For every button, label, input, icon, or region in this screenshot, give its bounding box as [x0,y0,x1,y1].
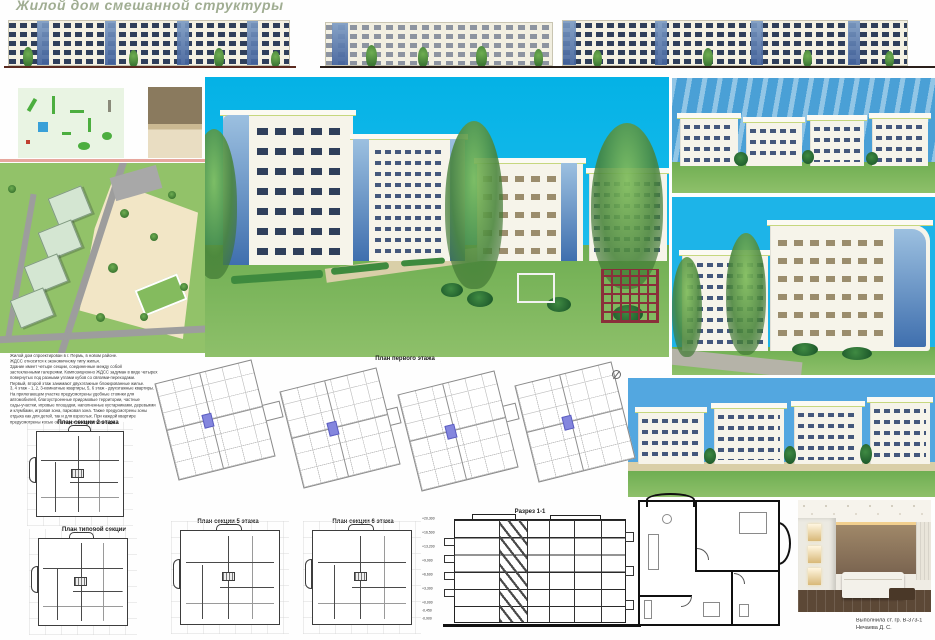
stair-core [74,577,87,586]
tree [885,51,894,67]
door-swing [681,596,692,607]
plan-wall [527,408,622,433]
balcony [444,555,455,563]
entrance-bump [68,425,91,432]
building [872,118,928,166]
bush [441,283,463,297]
roof-cornice [791,401,865,407]
glass-facade [561,163,577,261]
first-floor-plan-label: План первого этажа [330,356,480,362]
typical-plan-drawing [38,538,128,626]
bed [739,512,767,534]
map-water [38,122,48,132]
map-feature [27,98,37,112]
page-title: Жилой дом смешанной структуры [16,0,284,13]
balcony [625,566,634,576]
glass-strip [655,21,667,65]
window-grid [874,406,926,460]
glass-strip [332,23,348,65]
building [638,412,704,464]
map-feature [78,142,90,150]
glass-facade [353,139,369,261]
tree [726,233,766,355]
lit-niche [808,568,821,585]
door-swing [697,548,709,560]
sofa [648,534,659,571]
building-section-drawing: +20,300 +16,500 +13,200 +9,900 +6,600 +3… [422,517,632,639]
tree [803,50,812,67]
level-mark: +9,900 [422,559,433,562]
partition-wall [731,570,733,624]
tree [784,446,796,464]
apartment-unit-plan [638,500,780,626]
satellite-photo [148,87,202,158]
ground-line [320,66,558,68]
roof-cornice [807,115,867,121]
building [794,406,862,464]
window-grid [375,147,443,257]
tree [150,233,158,241]
street-view-rendering [628,378,935,497]
divider-strip [0,159,205,162]
tree [271,51,280,67]
plan-wall [410,417,505,442]
window-grid [642,416,700,460]
window-grid [778,235,886,345]
entrance-bump [69,532,94,539]
level-mark: +0,000 [422,601,433,604]
map-feature [52,96,55,114]
plan-wall [292,414,387,439]
stair-core [71,469,84,478]
elevator-core [562,415,575,431]
window-grid [684,122,734,162]
site-plan-rendering [0,163,205,353]
niche-wall [798,518,836,596]
level-mark: +16,500 [422,531,435,534]
level-mark: +6,600 [422,573,433,576]
entrance-bump [348,524,374,531]
glass-strip [751,21,763,65]
balcony-bump [305,559,312,589]
map-feature [62,132,71,135]
tree [140,313,148,321]
toilet [739,604,749,616]
roof-cornice [767,220,933,226]
main-perspective-rendering [205,77,669,357]
window-grid [876,122,924,162]
lit-niche [808,524,821,541]
building [714,408,784,464]
roof-cornice [635,407,707,413]
entrance-bump [216,524,242,531]
balcony-bump [31,566,38,592]
map-feature [88,118,91,132]
section5-plan-drawing [180,530,280,625]
presentation-board: Жилой дом смешанной структуры [0,0,935,640]
tree [476,46,487,67]
tree [860,444,872,464]
ground-line [556,66,935,68]
map-road [108,100,111,112]
level-mark: +13,200 [422,545,435,548]
lawn [672,162,935,193]
credit-line-2: Нечаева Д. С. [856,625,922,632]
building [870,402,930,464]
bush [842,347,872,360]
glass-facade [894,229,926,347]
elevator-core [327,421,340,437]
playground-climbing-frame [601,269,659,323]
tree [802,150,814,164]
cove-lighting [836,522,917,525]
section-wall [549,520,550,622]
building [746,122,802,166]
kitchen-counter [644,600,652,620]
partition-wall [695,502,697,570]
building [810,120,864,166]
back-wall [836,522,917,574]
bush [792,343,818,356]
window-grid [814,124,860,162]
roof-cornice [711,403,787,409]
table [662,514,672,524]
stair-flights [499,520,528,622]
glass-strip [563,21,576,65]
interior-rendering [798,500,931,612]
glass-strip [105,21,116,65]
elevator-core [445,424,458,440]
section-wall [601,520,602,622]
balcony [625,600,634,610]
balcony [625,532,634,542]
glass-strip [177,21,189,65]
partition-wall [695,570,778,572]
roof-structure [472,514,516,520]
window-grid [257,123,347,261]
window-grid [750,126,798,162]
credit-line-1: Выполнила ст. гр. В-373-1 [856,618,922,625]
building-main [770,225,930,351]
balcony [444,589,455,597]
close-up-rendering-right [672,197,935,375]
tree [168,191,176,199]
plan-wall [167,406,262,431]
curved-balcony [778,522,791,566]
tree [445,121,503,289]
playground-swing-frame [517,273,555,303]
tree [704,448,716,464]
roof-cornice [869,113,931,119]
tree [703,48,713,67]
level-mark: -0,900 [422,617,432,620]
ground-line [4,66,296,68]
floor-plan-section-2 [279,367,400,488]
glass-strip [848,21,860,65]
author-credit: Выполнила ст. гр. В-373-1 Нечаева Д. С. [856,618,922,632]
floor-plan-section-4 [514,361,635,482]
tree [23,47,33,67]
stair-core [354,572,367,581]
tree [129,50,138,67]
level-mark: +3,300 [422,587,433,590]
balcony [444,572,455,580]
north-arrow-icon [612,370,621,379]
glass-strip [247,21,258,65]
tree [672,257,702,357]
balcony [444,538,455,546]
elevator-core [202,413,215,429]
location-map [18,88,124,158]
tree [214,48,224,67]
elevation-drawing-north [8,20,290,66]
tree [120,209,129,218]
roof-cornice [743,117,805,123]
floor-plan-section-3 [397,370,518,491]
map-feature [70,110,84,113]
elevation-drawing-south [562,20,908,66]
ground-line [443,624,641,627]
lit-niche [808,546,821,563]
section-building-body [454,519,626,623]
roof-structure [550,515,601,520]
level-mark: -0,450 [422,609,432,612]
tree [366,45,377,67]
tree [180,283,188,291]
tree [534,49,543,67]
map-feature [26,140,30,144]
bathtub [703,602,720,617]
tree [418,47,428,67]
coffee-table [889,588,915,600]
roof-cornice [677,113,741,119]
tree [593,50,602,67]
tree [591,123,663,289]
tree [108,263,118,273]
aerial-rendering-top-right [672,78,935,193]
roof-cornice [867,397,933,403]
tree [96,313,105,322]
balcony-bump [29,457,36,483]
section2-plan-drawing [36,431,124,517]
level-mark: +20,300 [422,517,435,520]
balcony-bump [173,559,180,589]
curved-wall [646,493,696,507]
door-swing [734,573,745,584]
glass-strip [37,21,49,65]
section6-plan-drawing [312,530,412,625]
window-grid [718,412,780,460]
building-footprint [38,219,83,260]
tree [734,152,748,166]
building-block-1 [223,115,353,265]
tree [8,185,16,193]
building [680,118,738,166]
map-feature [102,132,112,140]
tree [866,152,878,165]
window-grid [798,410,858,460]
curtain [916,522,931,580]
elevation-drawing-side [325,22,553,66]
stair-core [222,572,235,581]
section-wall [574,520,575,622]
bush [467,291,493,307]
building-footprint [24,253,69,294]
